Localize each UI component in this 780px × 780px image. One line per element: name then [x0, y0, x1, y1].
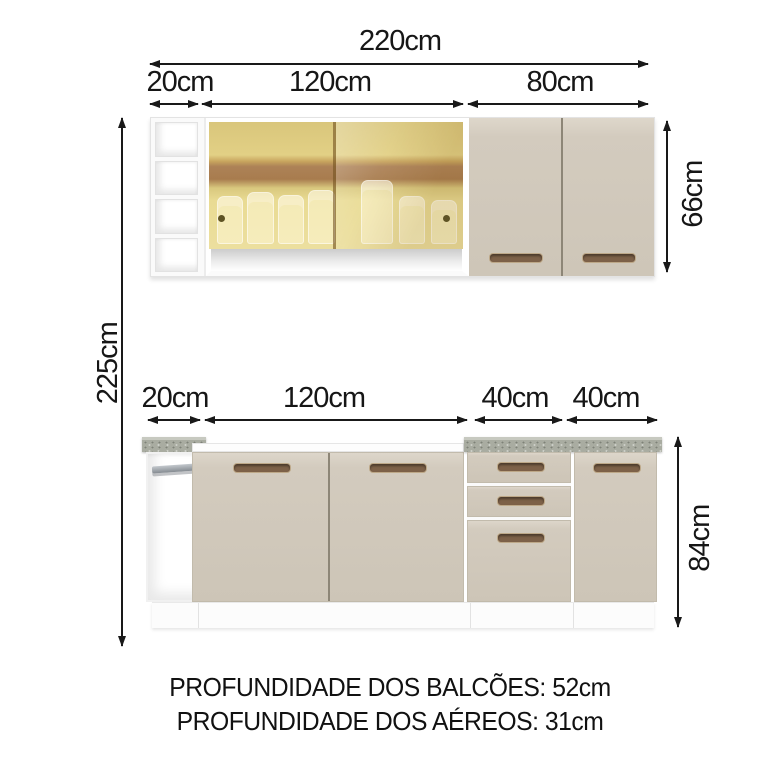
glass-cabinet	[206, 118, 469, 249]
upper-section-80-arrow	[468, 103, 648, 105]
plinth-seam	[470, 603, 471, 628]
upper-double-door-cabinet	[469, 118, 654, 276]
glass-door-right-panel	[333, 122, 463, 249]
glass-door-knob	[443, 215, 450, 222]
glass-door-knob	[218, 215, 225, 222]
lower-height-arrow	[677, 437, 679, 627]
lower-height-label: 84cm	[685, 488, 715, 588]
lower-section-20-arrow	[148, 419, 200, 421]
upper-section-20-label: 20cm	[130, 67, 230, 97]
door-handle	[593, 463, 641, 473]
open-display-shelf	[206, 249, 469, 276]
plinth-seam	[198, 603, 199, 628]
plinth-seam	[573, 603, 574, 628]
shelf-compartment	[155, 238, 198, 273]
kitchen-dimension-diagram: 220cm 20cm 120cm 80cm 225cm	[0, 0, 780, 780]
drawer	[467, 520, 571, 602]
drawer-handle	[497, 462, 545, 472]
towel-rail	[152, 463, 196, 473]
lower-section-40a-label: 40cm	[465, 383, 565, 413]
upper-height-label: 66cm	[678, 144, 708, 244]
lower-section-120-arrow	[205, 419, 467, 421]
lower-section-120-label: 120cm	[264, 383, 384, 413]
lower-section-40a-arrow	[475, 419, 562, 421]
base-double-door-cabinet	[192, 452, 464, 602]
lower-section-40b-label: 40cm	[556, 383, 656, 413]
drawer	[467, 452, 571, 483]
drawer	[467, 486, 571, 517]
upper-section-120-arrow	[202, 103, 463, 105]
jar	[308, 190, 335, 244]
shelf-compartment	[155, 122, 198, 157]
drawer-handle	[497, 533, 545, 543]
overall-width-arrow	[150, 63, 648, 65]
countertop-right	[464, 437, 662, 452]
drawer-cabinet	[467, 452, 571, 602]
door-handle	[489, 253, 543, 263]
open-shelf-unit	[151, 118, 206, 276]
overall-height-label: 225cm	[93, 293, 123, 433]
door-handle	[582, 253, 636, 263]
door-divider	[328, 453, 330, 601]
door-handle	[369, 463, 427, 473]
lower-section-20-label: 20cm	[125, 383, 225, 413]
depth-note-aereos: PROFUNDIDADE DOS AÉREOS: 31cm	[20, 706, 761, 737]
glass-sliding-doors	[209, 122, 463, 249]
upper-cabinet	[150, 117, 655, 277]
plinth-base	[152, 602, 654, 628]
upper-height-arrow	[666, 121, 668, 272]
upper-section-80-label: 80cm	[505, 67, 615, 97]
door-divider	[561, 118, 563, 276]
jar	[278, 195, 304, 244]
jar	[247, 192, 274, 244]
shelf-compartment	[155, 161, 198, 196]
shelf-compartment	[155, 199, 198, 234]
drawer-handle	[497, 496, 545, 506]
upper-section-120-label: 120cm	[270, 67, 390, 97]
base-single-door-cabinet	[574, 452, 657, 602]
base-cabinet-top	[192, 443, 464, 452]
lower-section-40b-arrow	[567, 419, 657, 421]
door-handle	[233, 463, 291, 473]
overall-width-label: 220cm	[300, 26, 500, 56]
depth-note-balcoes: PROFUNDIDADE DOS BALCÕES: 52cm	[20, 672, 761, 703]
upper-section-20-arrow	[150, 103, 198, 105]
